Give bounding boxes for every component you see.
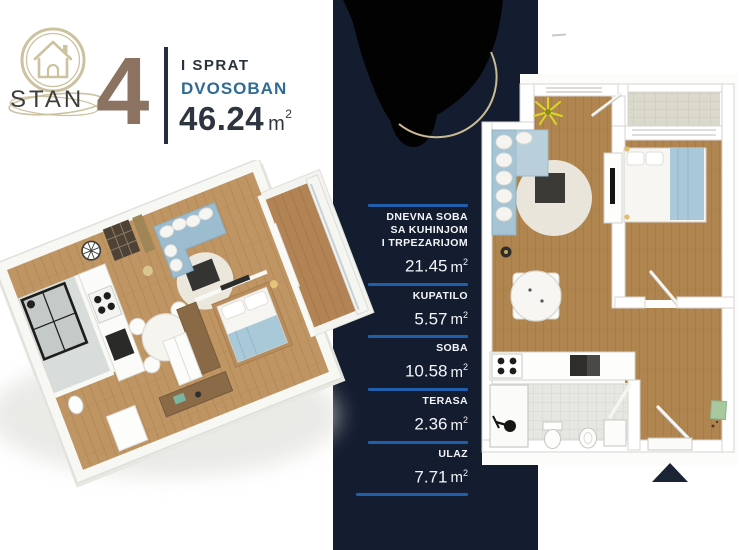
floor-label: I SPRAT [181, 57, 250, 74]
total-area-value: 46.24 [179, 100, 264, 137]
north-arrow-icon [652, 463, 688, 482]
total-area-unit: m [268, 113, 285, 135]
apartment-type-label: DVOSOBAN [181, 79, 287, 99]
header-divider [164, 47, 168, 144]
stray-mark [552, 34, 566, 37]
floor-plan-flyer: STAN 4 I SPRAT DVOSOBAN 46.24m2 DNEVNA S… [0, 0, 740, 550]
total-area: 46.24m2 [179, 100, 292, 138]
plan-2d [480, 70, 740, 490]
unit-number: 4 [96, 44, 149, 140]
plan-3d-render [0, 160, 390, 510]
